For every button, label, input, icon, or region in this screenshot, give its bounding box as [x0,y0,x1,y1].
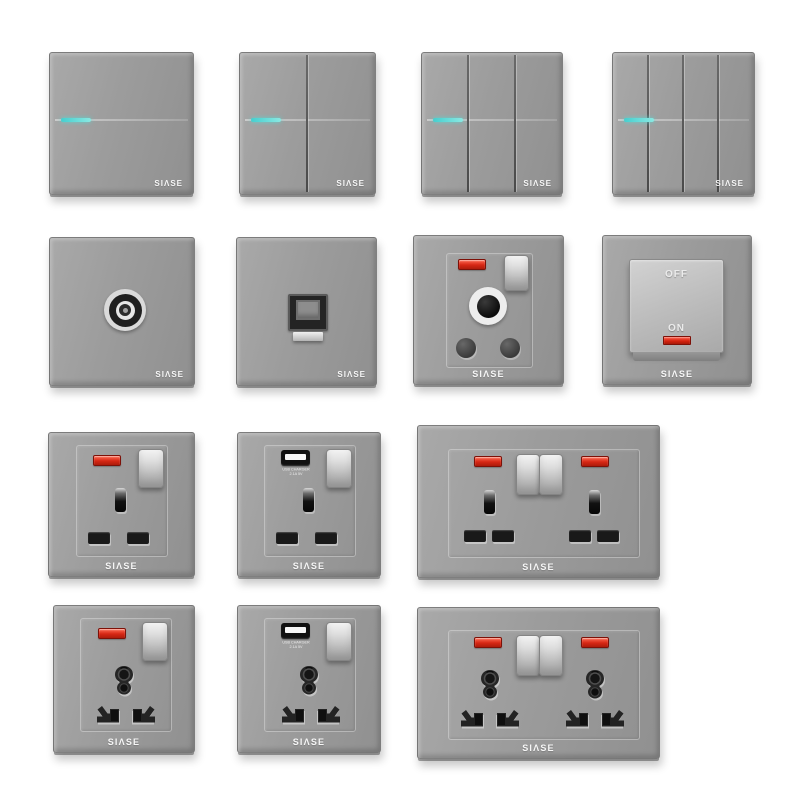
tv-coax-port-icon [104,289,146,331]
gang-divider [514,55,516,192]
gang-divider [682,55,684,192]
live-pin-hole [456,338,476,358]
plate-heater-switch[interactable]: OFF ON SIΛSE [602,235,752,385]
neutral-slot-left [492,530,514,542]
universal-live-slot-left [459,708,485,728]
earth-slot [303,488,314,512]
neon-indicator-right-icon [581,456,609,467]
neutral-slot-right [597,530,619,542]
gang-divider [647,55,649,192]
socket-switch-rocker [142,622,168,661]
brand-logo: SIΛSE [418,743,659,753]
earth-slot-left [484,490,495,514]
earth-slot [115,488,126,512]
universal-live-slot [95,704,121,724]
plate-tv-socket[interactable]: SIΛSE [49,237,195,386]
earth-pin-hole [469,287,507,325]
brand-logo: SIΛSE [155,370,184,379]
off-label: OFF [630,269,723,280]
product-grid: SIΛSE SIΛSE SIΛSE SIΛSE SIΛSE SIΛSE [0,0,800,800]
brand-logo: SIΛSE [715,179,744,188]
brand-logo: SIΛSE [238,561,380,571]
socket-switch-rocker-left [516,454,540,495]
live-slot-left [464,530,486,542]
neutral-slot [127,532,149,544]
gang-divider [717,55,719,192]
brand-logo: SIΛSE [54,737,194,747]
live-slot [276,532,298,544]
universal-neutral-slot [316,704,342,724]
universal-earth-slot [297,665,321,699]
on-label: ON [630,323,723,334]
usb-charger-note: USB CHARGER 2.1A 5V [277,641,314,649]
socket-switch-rocker [326,449,352,488]
plate-uk-socket-neon[interactable]: SIΛSE [48,432,195,577]
usb-port-icon [281,623,310,639]
led-indicator-icon [61,118,91,122]
brand-logo: SIΛSE [238,737,380,747]
brand-logo: SIΛSE [523,179,552,188]
live-slot-right [569,530,591,542]
plate-15a-socket[interactable]: SIΛSE [413,235,564,385]
socket-switch-rocker-right [539,454,563,495]
plate-universal-socket-usb[interactable]: USB CHARGER 2.1A 5V SIΛSE [237,605,381,753]
earth-slot-right [589,490,600,514]
led-indicator-icon [433,118,463,122]
live-slot [88,532,110,544]
usb-port-icon [281,450,310,466]
brand-logo: SIΛSE [154,179,183,188]
plate-universal-socket-neon[interactable]: SIΛSE [53,605,195,753]
plate-switch-4gang[interactable]: SIΛSE [612,52,755,195]
universal-live-slot [280,704,306,724]
plate-switch-1gang[interactable]: SIΛSE [49,52,194,195]
gang-divider [467,55,469,192]
neon-indicator-left-icon [474,456,502,467]
led-indicator-icon [251,118,281,122]
rocker-bevel [633,352,720,361]
universal-earth-slot-right [583,669,607,703]
socket-switch-rocker [138,449,164,488]
socket-switch-rocker-left [516,635,540,676]
led-indicator-icon [624,118,654,122]
neon-indicator-icon [93,455,121,466]
neon-indicator-left-icon [474,637,502,648]
neutral-pin-hole [500,338,520,358]
socket-switch-rocker [326,622,352,661]
brand-logo: SIΛSE [603,369,751,379]
usb-charger-note: USB CHARGER 2.1A 5V [277,468,314,476]
universal-neutral-slot [131,704,157,724]
socket-switch-rocker [504,255,529,291]
universal-neutral-slot-right [600,708,626,728]
universal-earth-slot [112,665,136,699]
plate-universal-double-socket[interactable]: SIΛSE [417,607,660,759]
neon-indicator-icon [663,336,691,345]
plate-switch-3gang[interactable]: SIΛSE [421,52,563,195]
brand-logo: SIΛSE [418,562,659,572]
plate-lan-socket[interactable]: SIΛSE [236,237,377,386]
neon-indicator-icon [98,628,126,639]
ethernet-port-icon [288,294,328,331]
brand-logo: SIΛSE [49,561,194,571]
plate-uk-double-socket[interactable]: SIΛSE [417,425,660,578]
neon-indicator-icon [458,259,486,270]
ethernet-port-flap [293,332,323,341]
neon-indicator-right-icon [581,637,609,648]
socket-switch-rocker-right [539,635,563,676]
plate-uk-socket-usb[interactable]: USB CHARGER 2.1A 5V SIΛSE [237,432,381,577]
plate-switch-2gang[interactable]: SIΛSE [239,52,376,195]
brand-logo: SIΛSE [414,369,563,379]
gang-divider [306,55,308,192]
onoff-rocker: OFF ON [629,259,724,353]
neutral-slot [315,532,337,544]
brand-logo: SIΛSE [336,179,365,188]
universal-live-slot-right [564,708,590,728]
brand-logo: SIΛSE [337,370,366,379]
universal-neutral-slot-left [495,708,521,728]
universal-earth-slot-left [478,669,502,703]
